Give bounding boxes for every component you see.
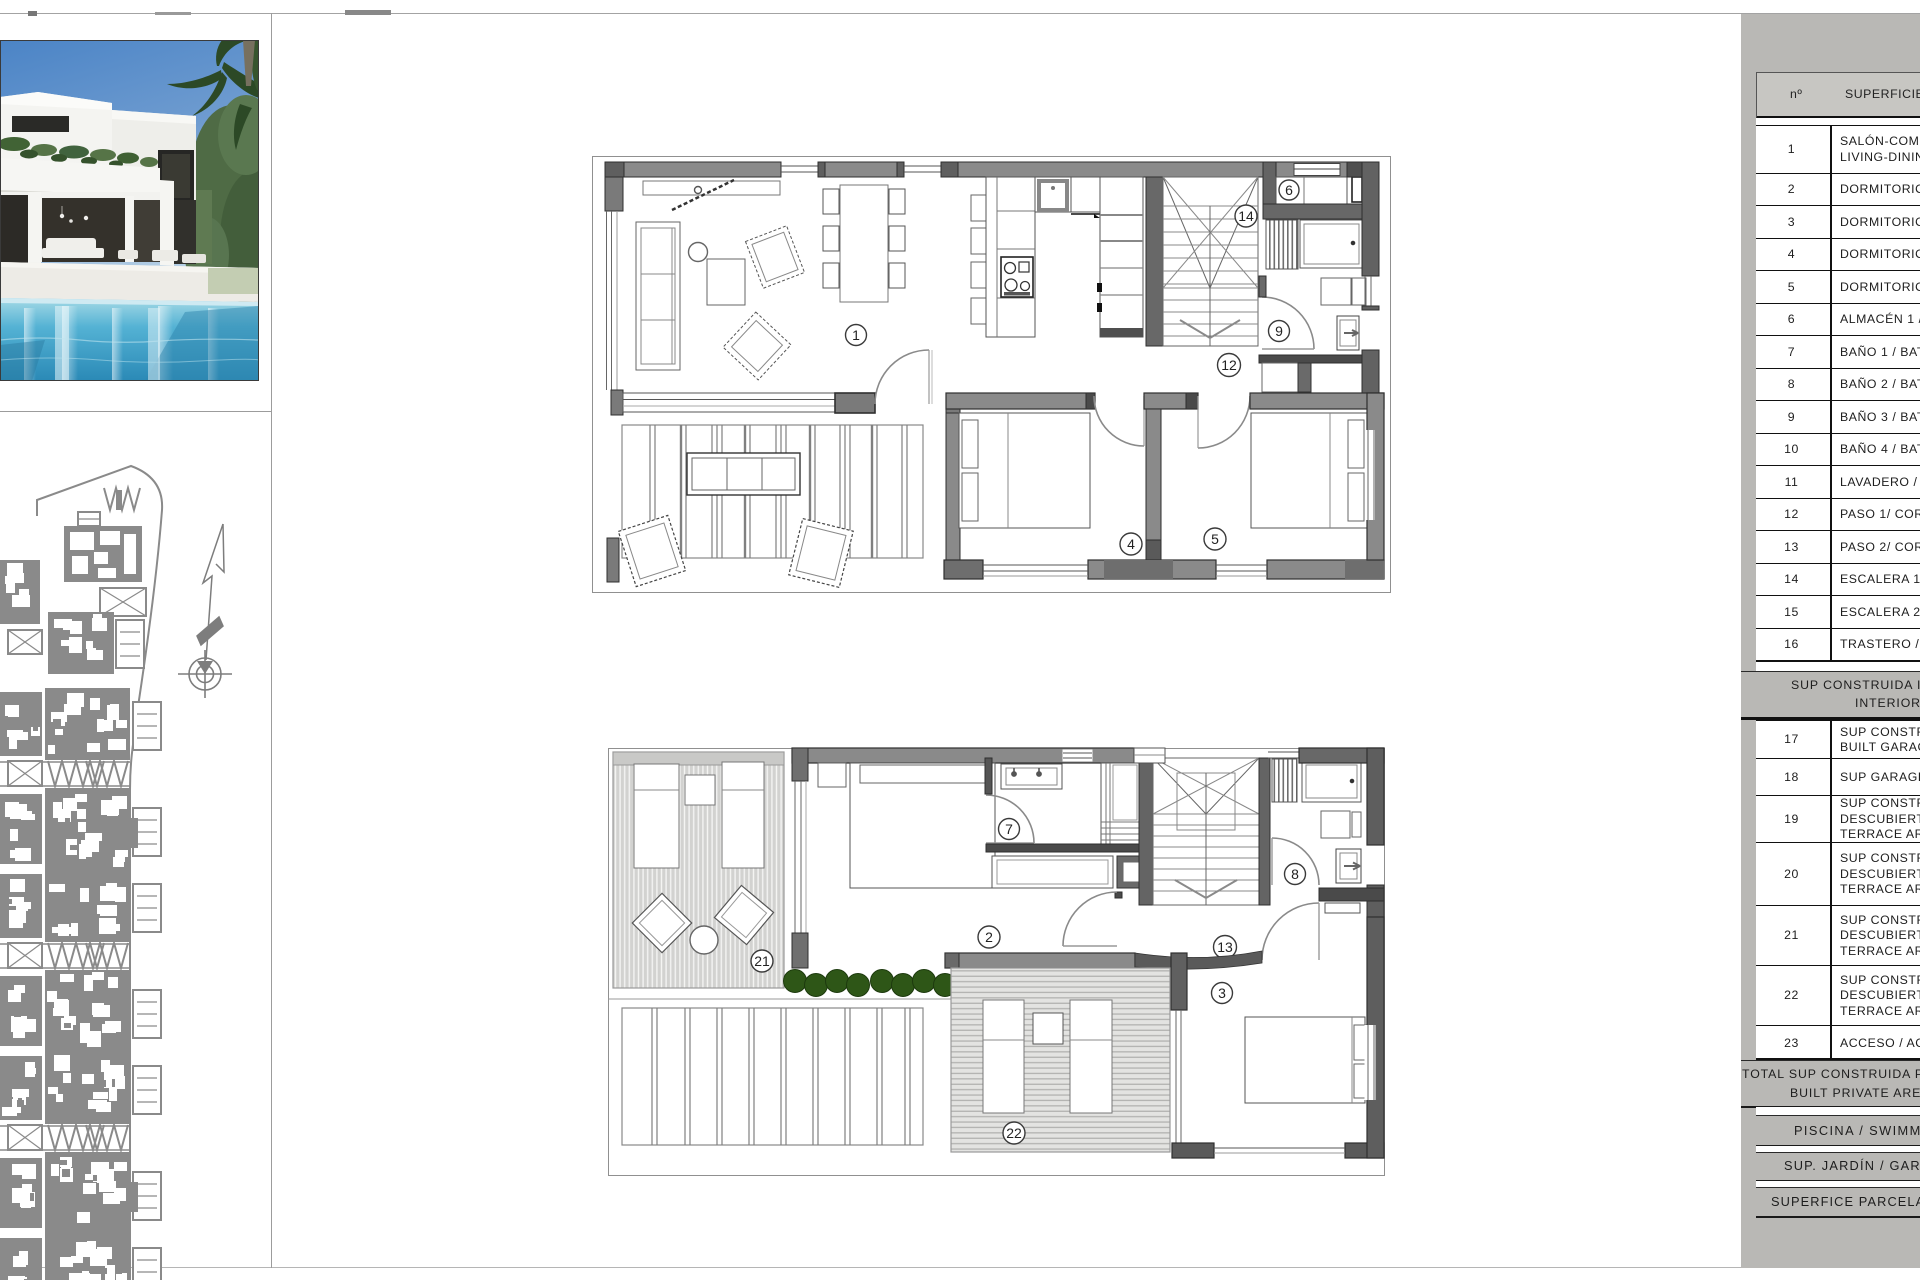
svg-text:22: 22 (1006, 1125, 1022, 1141)
svg-text:8: 8 (1291, 866, 1299, 882)
svg-text:21: 21 (754, 953, 770, 969)
svg-text:2: 2 (985, 929, 993, 945)
svg-text:3: 3 (1218, 985, 1226, 1001)
svg-text:13: 13 (1217, 939, 1233, 955)
svg-text:7: 7 (1005, 821, 1013, 837)
